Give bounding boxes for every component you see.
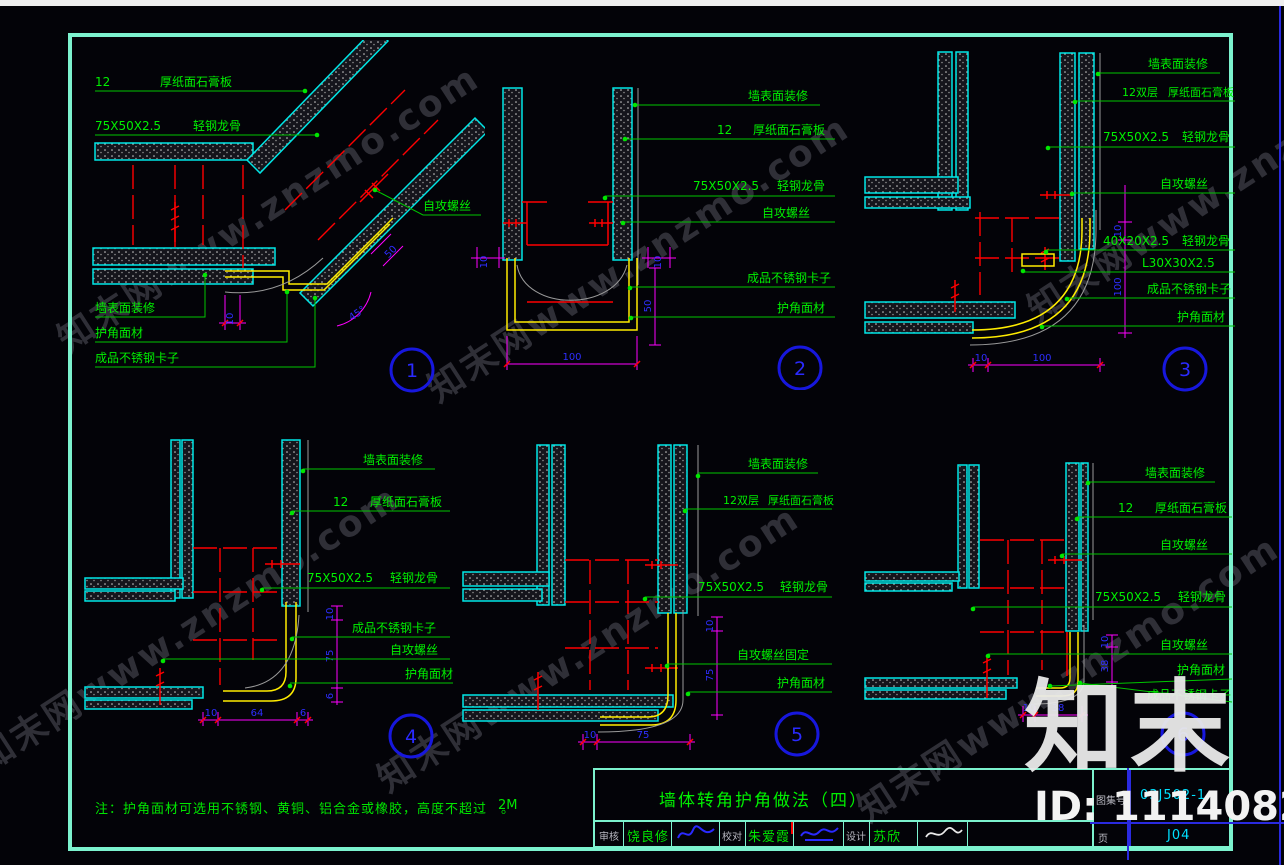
screw-icon bbox=[645, 664, 678, 672]
detail-1-drawing: 10 45° 50 12 厚纸面石膏板 75X50X2.5 轻钢龙骨 自攻螺丝 … bbox=[75, 40, 485, 395]
dim-10: 10 bbox=[1100, 636, 1111, 649]
znzmo-logo: 知末 bbox=[1024, 678, 1236, 778]
label-wall-finish: 墙表面装修 bbox=[1145, 465, 1205, 480]
right-edge-line bbox=[1279, 6, 1281, 865]
dim-10: 10 bbox=[325, 608, 336, 621]
drawing-note: 注：护角面材可选用不锈钢、黄铜、铝合金或橡胶，高度不超过 。 bbox=[95, 798, 515, 817]
dim-10: 10 bbox=[584, 730, 597, 741]
dim-10: 10 bbox=[653, 256, 664, 269]
label-screw: 自攻螺丝 bbox=[390, 643, 438, 657]
label-board: 厚纸面石膏板 bbox=[768, 493, 834, 507]
label-keel-spec: 75X50X2.5 bbox=[95, 119, 161, 133]
label-keel: 轻钢龙骨 bbox=[1182, 130, 1230, 144]
reviewer-name: 饶良修 bbox=[627, 826, 669, 845]
label-wall-finish: 墙表面装修 bbox=[95, 300, 155, 315]
window-top-strip bbox=[0, 0, 1284, 6]
drawing-note-height: 2M bbox=[498, 798, 518, 813]
design-label: 设计 bbox=[846, 828, 866, 843]
dim-75: 75 bbox=[637, 730, 650, 741]
dim-100: 100 bbox=[1113, 277, 1124, 296]
dim-6: 6 bbox=[300, 708, 306, 719]
designer-signature bbox=[921, 824, 965, 844]
label-guard: 护角面材 bbox=[777, 676, 825, 690]
label-clip: 成品不锈钢卡子 bbox=[352, 621, 436, 635]
dim-10: 10 bbox=[479, 256, 490, 269]
reviewer-signature bbox=[675, 824, 717, 844]
dim-64: 64 bbox=[251, 708, 264, 719]
label-guard: 护角面材 bbox=[1177, 310, 1225, 324]
label-screw: 自攻螺丝 bbox=[1160, 177, 1208, 191]
label-keel: 轻钢龙骨 bbox=[777, 179, 825, 193]
checker-name: 朱爱霞 bbox=[748, 826, 790, 845]
label-keel2: 轻钢龙骨 bbox=[1182, 234, 1230, 248]
screw-icon bbox=[171, 202, 179, 242]
label-board: 厚纸面石膏板 bbox=[370, 494, 442, 509]
label-keel-spec: 75X50X2.5 bbox=[693, 179, 759, 193]
label-screw-fixed: 自攻螺丝固定 bbox=[737, 647, 809, 662]
label-board-qty: 12 bbox=[95, 75, 110, 89]
dim-50: 50 bbox=[383, 244, 400, 261]
label-wall-finish: 墙表面装修 bbox=[748, 456, 808, 471]
page-label: 页 bbox=[1098, 830, 1108, 845]
detail-number: 5 bbox=[791, 724, 803, 746]
detail-number: 3 bbox=[1179, 359, 1191, 381]
review-label: 审核 bbox=[599, 828, 619, 843]
sheet-title: 墙体转角护角做法（四） bbox=[659, 786, 868, 811]
label-guard: 护角面材 bbox=[95, 326, 143, 340]
label-keel-spec: 75X50X2.5 bbox=[698, 580, 764, 594]
dim-100: 100 bbox=[562, 352, 581, 363]
label-board-qty: 12 bbox=[333, 495, 348, 509]
label-keel: 轻钢龙骨 bbox=[780, 580, 828, 594]
detail-4-drawing: 10 75 6 10 64 6 墙表面装修 12 厚纸面石膏板 75X50X2.… bbox=[75, 420, 475, 765]
label-clip: 成品不锈钢卡子 bbox=[747, 271, 831, 285]
label-board-qty: 12 bbox=[1118, 501, 1133, 515]
dim-10: 10 bbox=[205, 708, 218, 719]
label-guard: 护角面材 bbox=[777, 301, 825, 315]
screw-icon bbox=[645, 561, 678, 569]
dim-75: 75 bbox=[705, 669, 716, 682]
label-board-qty: 12 bbox=[717, 123, 732, 137]
dim-75: 75 bbox=[325, 650, 336, 663]
dim-10: 10 bbox=[705, 620, 716, 633]
dim-50: 50 bbox=[643, 300, 654, 313]
detail-2-drawing: 10 10 50 100 墙表面装修 12 厚纸面石膏板 75X50X2.5 轻… bbox=[465, 40, 855, 390]
detail-number: 2 bbox=[794, 358, 806, 380]
label-keel-spec: 75X50X2.5 bbox=[307, 571, 373, 585]
label-board: 厚纸面石膏板 bbox=[1168, 85, 1234, 99]
check-label: 校对 bbox=[722, 828, 742, 843]
label-keel-spec: 75X50X2.5 bbox=[1095, 590, 1161, 604]
screw-icon bbox=[589, 219, 613, 227]
dim-6: 6 bbox=[325, 693, 336, 699]
label-board: 厚纸面石膏板 bbox=[160, 74, 232, 89]
watermark-id: ID: 1114082388 bbox=[1034, 784, 1284, 830]
label-screw: 自攻螺丝 bbox=[1160, 538, 1208, 552]
page-number: J04 bbox=[1167, 828, 1190, 843]
label-wall-finish: 墙表面装修 bbox=[363, 452, 423, 467]
label-keel: 轻钢龙骨 bbox=[1178, 590, 1226, 604]
dim-10: 10 bbox=[225, 313, 236, 326]
label-screw: 自攻螺丝 bbox=[423, 199, 471, 213]
label-wall-finish: 墙表面装修 bbox=[748, 88, 808, 103]
cad-drawing-page: 知末网www.znzmo.com 知末网www.znzmo.com 知末网www… bbox=[0, 0, 1284, 865]
label-screw: 自攻螺丝 bbox=[762, 206, 810, 220]
label-keel2-spec: 40X20X2.5 bbox=[1103, 234, 1169, 248]
label-keel: 轻钢龙骨 bbox=[390, 571, 438, 585]
label-clip: 成品不锈钢卡子 bbox=[95, 351, 179, 365]
checker-signature bbox=[797, 824, 841, 844]
detail-number: 4 bbox=[405, 726, 417, 748]
label-screw-2: 自攻螺丝 bbox=[1160, 638, 1208, 652]
detail-number: 1 bbox=[406, 360, 418, 382]
label-angle: L30X30X2.5 bbox=[1142, 256, 1215, 270]
label-board: 厚纸面石膏板 bbox=[1155, 500, 1227, 515]
detail-5-drawing: 10 75 10 75 墙表面装修 12双层 厚纸面石膏板 75X50X2.5 … bbox=[440, 420, 840, 768]
label-board-qty: 12双层 bbox=[723, 494, 759, 507]
label-board: 厚纸面石膏板 bbox=[753, 122, 825, 137]
dim-100: 100 bbox=[1032, 353, 1051, 364]
label-board-qty: 12双层 bbox=[1122, 86, 1158, 99]
label-keel-spec: 75X50X2.5 bbox=[1103, 130, 1169, 144]
detail-3-drawing: 10 100 10 100 墙表面装修 12双层 厚纸面石膏板 75X50X2.… bbox=[860, 40, 1245, 392]
label-wall-finish: 墙表面装修 bbox=[1148, 56, 1208, 71]
dim-10: 10 bbox=[975, 353, 988, 364]
label-keel: 轻钢龙骨 bbox=[193, 119, 241, 133]
label-clip: 成品不锈钢卡子 bbox=[1147, 282, 1231, 296]
designer-name: 苏欣 bbox=[873, 826, 901, 845]
